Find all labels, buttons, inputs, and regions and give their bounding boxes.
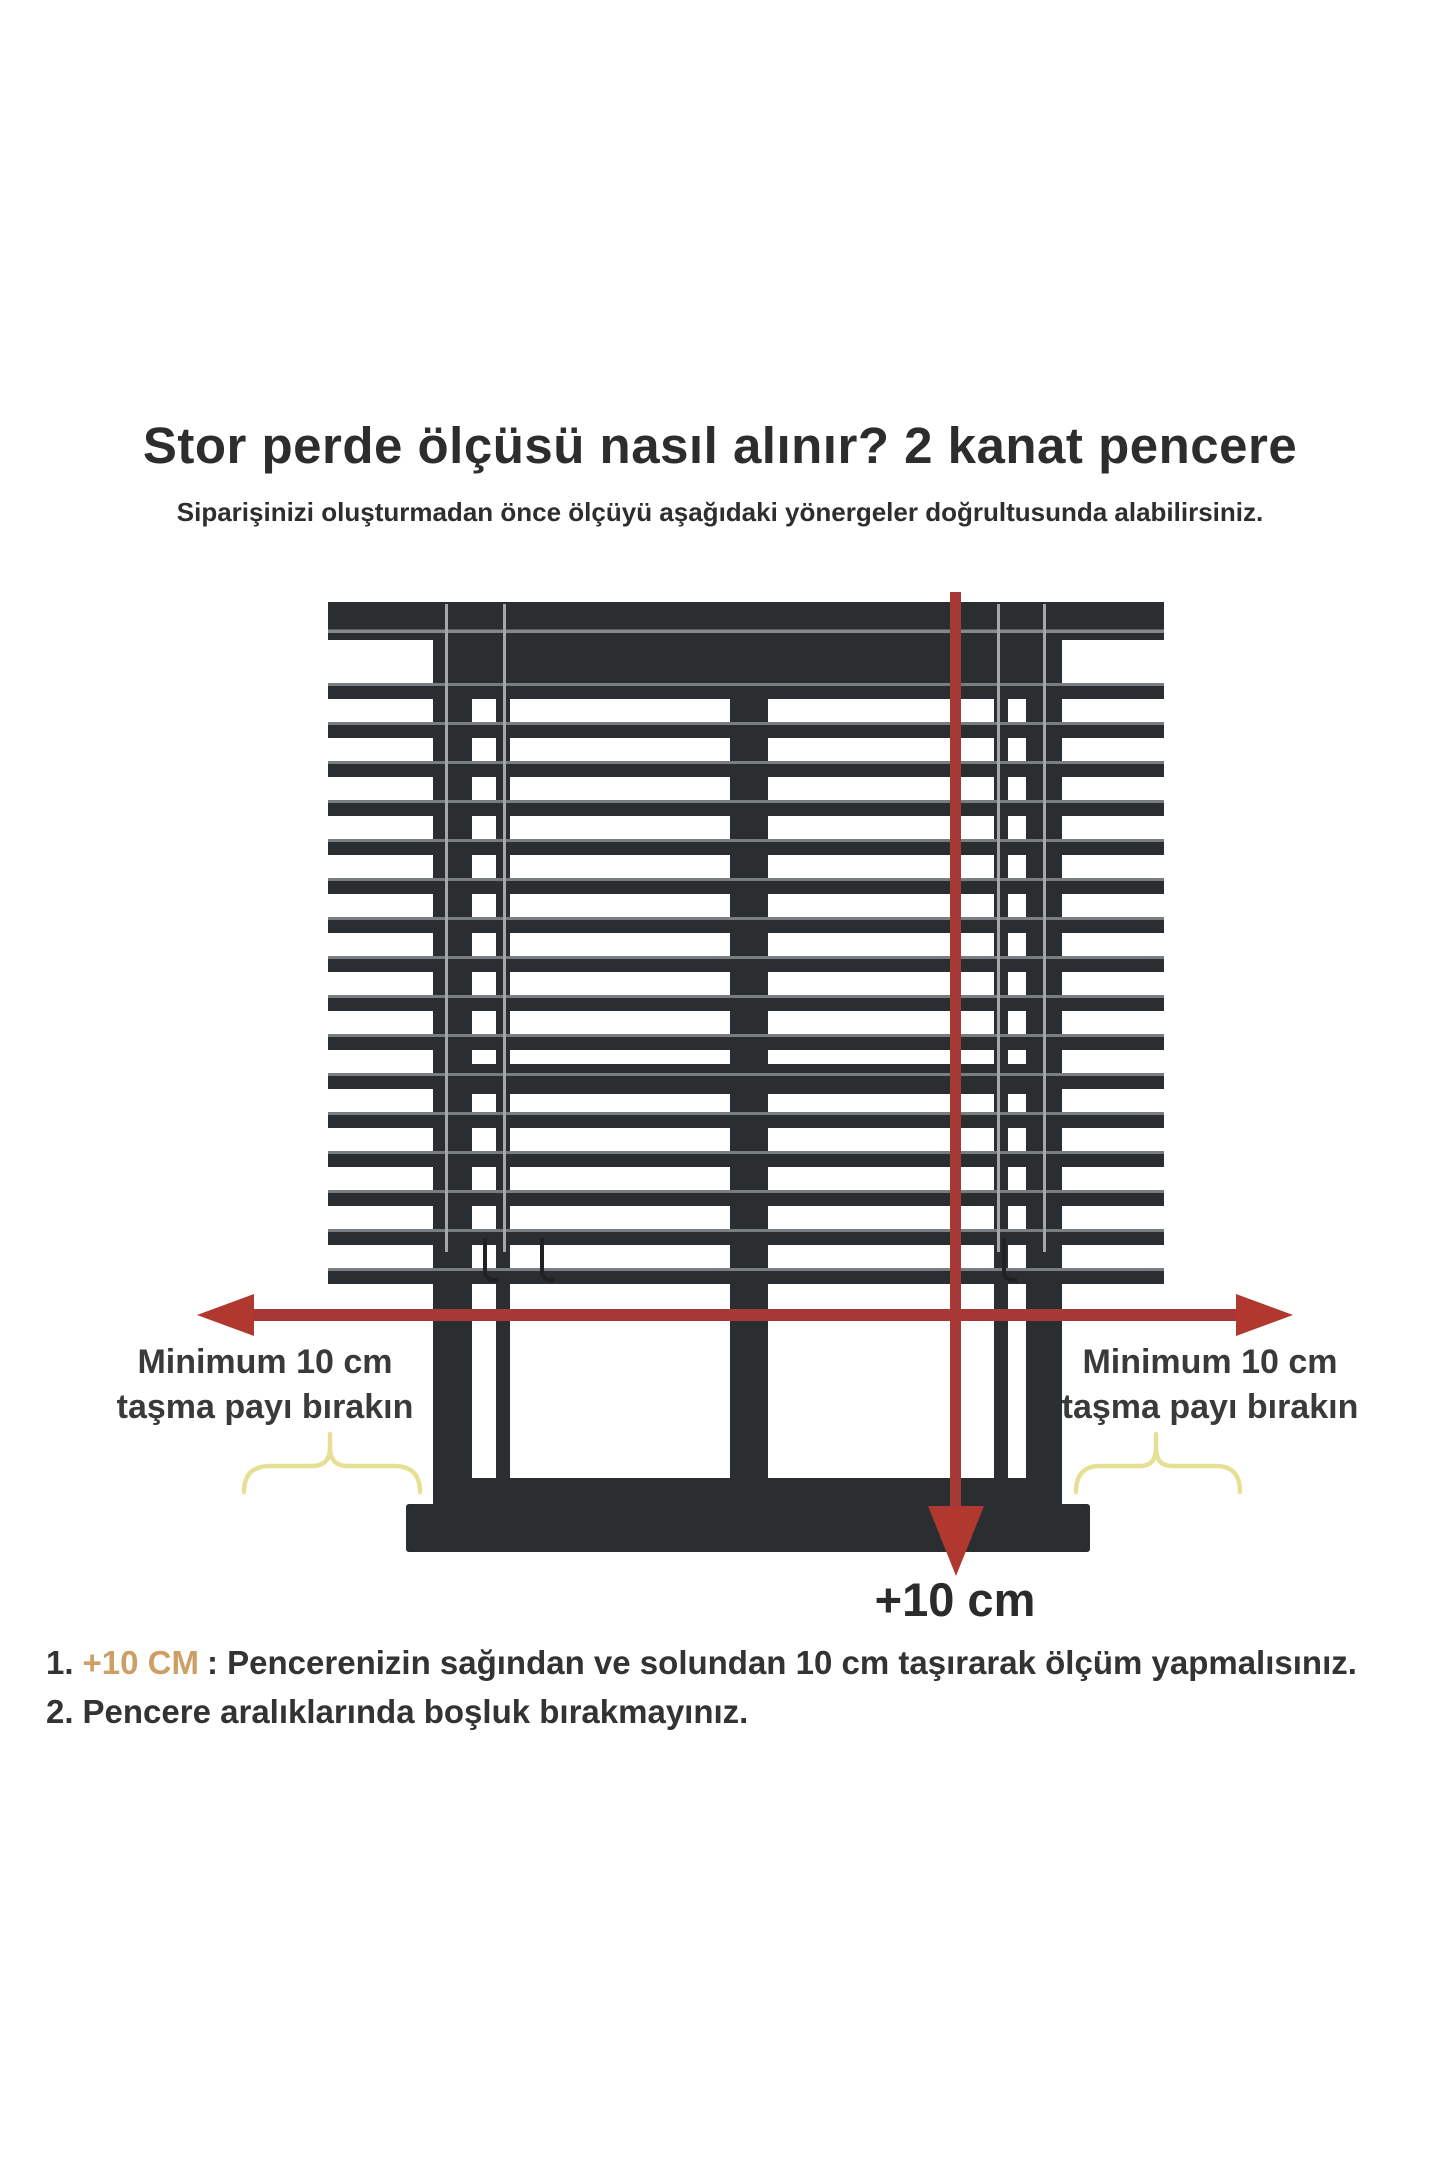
blind-slat [328,995,1164,1011]
blind-slat [328,800,1164,816]
right-overhang-label: Minimum 10 cm taşma payı bırakın [1045,1340,1375,1430]
note-number: 2. [46,1693,74,1730]
blind-slat [328,683,1164,699]
note-text: : Pencerenizin sağından ve solundan 10 c… [207,1644,1357,1681]
infographic-canvas: Stor perde ölçüsü nasıl alınır? 2 kanat … [0,0,1440,2160]
cord-tassel-icon [540,1238,555,1282]
notes-list: 1.+10 CM: Pencerenizin sağından ve solun… [46,1638,1406,1736]
blind-slat [328,1112,1164,1128]
arrow-down-head-icon [928,1506,984,1576]
blind-slat [328,1229,1164,1245]
left-overhang-label-line2: taşma payı bırakın [95,1385,435,1430]
width-measure-arrow [250,1309,1240,1321]
window-bottom-rail [433,1478,1062,1506]
right-overhang-bracket-icon [1072,1428,1244,1498]
blind-slat [328,917,1164,933]
blind-slat [328,1073,1164,1089]
blind-slat [328,956,1164,972]
blind-cord [503,604,506,1252]
note-line-1: 1.+10 CM: Pencerenizin sağından ve solun… [46,1638,1406,1687]
page-title: Stor perde ölçüsü nasıl alınır? 2 kanat … [0,416,1440,475]
page-subtitle: Siparişinizi oluşturmadan önce ölçüyü aş… [0,497,1440,528]
arrow-right-head-icon [1236,1294,1293,1336]
window-sill [406,1504,1090,1552]
blind-slat [328,1034,1164,1050]
blind-slat [328,722,1164,738]
plus-10cm-label: +10 cm [835,1572,1075,1627]
left-overhang-label: Minimum 10 cm taşma payı bırakın [95,1340,435,1430]
left-overhang-label-line1: Minimum 10 cm [95,1340,435,1385]
arrow-left-head-icon [197,1294,254,1336]
blind-slat [328,839,1164,855]
blind-cord [997,604,1000,1252]
blind-cord [1043,604,1046,1252]
blind-headrail [328,602,1164,640]
cord-tassel-icon [1002,1238,1017,1282]
blind-slat [328,1190,1164,1206]
right-overhang-label-line1: Minimum 10 cm [1045,1340,1375,1385]
note-text: Pencere aralıklarında boşluk bırakmayını… [83,1693,749,1730]
note-line-2: 2.Pencere aralıklarında boşluk bırakmayı… [46,1687,1406,1736]
blind-cord [445,604,448,1252]
cord-tassel-icon [483,1238,498,1282]
note-highlight: +10 CM [83,1644,199,1681]
left-overhang-bracket-icon [240,1428,424,1498]
note-number: 1. [46,1644,74,1681]
blind-slat [328,1268,1164,1284]
right-overhang-label-line2: taşma payı bırakın [1045,1385,1375,1430]
height-measure-arrow [950,592,961,1510]
blind-slat [328,1151,1164,1167]
blind-slat [328,878,1164,894]
blind-slat [328,761,1164,777]
